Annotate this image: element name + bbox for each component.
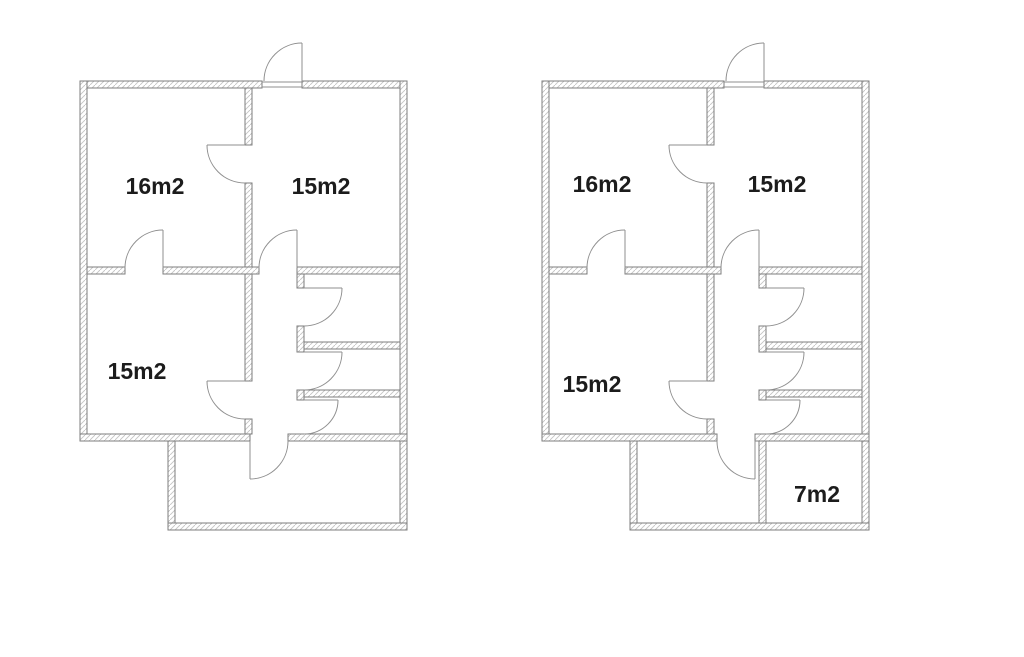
door-threshold (724, 82, 764, 87)
door-corridor-top (766, 288, 804, 326)
room-label-15m2-middle: 15m2 (563, 371, 622, 397)
wall-segment (766, 342, 862, 349)
door-swing-arc (669, 381, 707, 419)
wall-segment (759, 441, 766, 523)
wall-segment (759, 274, 766, 288)
door-swing-arc (766, 288, 804, 326)
door-swing-arc (207, 381, 245, 419)
doors-group (587, 43, 804, 479)
wall-segment (630, 441, 637, 530)
wall-segment (625, 267, 721, 274)
door-room-15m2-middle (669, 381, 707, 419)
wall-segment (304, 390, 400, 397)
floor-plan-left: 16m2 15m2 15m2 (80, 43, 407, 530)
room-label-16m2: 16m2 (573, 171, 632, 197)
wall-segment (87, 267, 125, 274)
door-swing-arc (264, 43, 302, 81)
door-corridor-bottom (766, 400, 800, 434)
wall-segment (764, 81, 869, 88)
door-swing-arc (721, 230, 759, 268)
door-swing-arc (717, 441, 755, 479)
room-label-7m2: 7m2 (794, 481, 840, 507)
wall-segment (80, 81, 262, 88)
wall-segment (304, 342, 400, 349)
wall-segment (759, 267, 862, 274)
door-swing-arc (259, 230, 297, 268)
wall-segment (245, 419, 252, 434)
wall-segment (755, 434, 869, 441)
wall-segment (168, 441, 175, 530)
floor-plan-right: 16m2 15m2 15m2 7m2 (542, 43, 869, 530)
room-label-15m2-top: 15m2 (748, 171, 807, 197)
door-corridor-top (304, 288, 342, 326)
walls-group (542, 81, 869, 530)
door-swing-arc (304, 288, 342, 326)
wall-segment (766, 390, 862, 397)
wall-segment (707, 274, 714, 381)
floor-plans-canvas: 16m2 15m2 15m2 (0, 0, 1024, 657)
labels-group: 16m2 15m2 15m2 7m2 (563, 171, 840, 507)
door-room-15m2-middle (207, 381, 245, 419)
door-swing-arc (304, 352, 342, 390)
wall-segment (302, 81, 407, 88)
wall-segment (707, 183, 714, 267)
wall-segment (630, 523, 869, 530)
door-corridor-middle (304, 352, 342, 390)
wall-segment (168, 523, 407, 530)
wall-segment (297, 274, 304, 288)
wall-segment (542, 434, 717, 441)
door-swing-arc (250, 441, 288, 479)
door-room-15m2-top (721, 230, 759, 268)
floor-plans-page: 16m2 15m2 15m2 (0, 0, 1024, 657)
door-room-16m2 (125, 230, 163, 268)
door-room-15m2-top (259, 230, 297, 268)
walls-group (80, 81, 407, 530)
room-label-15m2-middle: 15m2 (108, 358, 167, 384)
wall-segment (297, 267, 400, 274)
wall-segment (707, 419, 714, 434)
door-swing-arc (207, 145, 245, 183)
wall-segment (297, 390, 304, 400)
door-corridor-middle (766, 352, 804, 390)
wall-segment (400, 81, 407, 530)
wall-segment (245, 274, 252, 381)
room-label-15m2-top: 15m2 (292, 173, 351, 199)
wall-segment (297, 326, 304, 352)
wall-segment (759, 390, 766, 400)
wall-segment (288, 434, 407, 441)
wall-segment (542, 81, 724, 88)
door-between-top-rooms (669, 145, 707, 183)
wall-segment (80, 434, 250, 441)
wall-segment (542, 81, 549, 441)
wall-segment (245, 183, 252, 267)
door-entry (724, 43, 764, 87)
wall-segment (163, 267, 259, 274)
door-extension (717, 441, 755, 479)
door-corridor-bottom (304, 400, 338, 434)
door-entry (262, 43, 302, 87)
door-extension (250, 441, 288, 479)
door-swing-arc (766, 400, 800, 434)
wall-segment (80, 81, 87, 441)
door-threshold (262, 82, 302, 87)
door-swing-arc (125, 230, 163, 268)
door-room-16m2 (587, 230, 625, 268)
doors-group (125, 43, 342, 479)
door-swing-arc (304, 400, 338, 434)
door-between-top-rooms (207, 145, 245, 183)
door-swing-arc (766, 352, 804, 390)
wall-segment (549, 267, 587, 274)
door-swing-arc (726, 43, 764, 81)
wall-segment (759, 326, 766, 352)
wall-segment (862, 81, 869, 530)
room-label-16m2: 16m2 (126, 173, 185, 199)
wall-segment (707, 88, 714, 145)
door-swing-arc (669, 145, 707, 183)
door-swing-arc (587, 230, 625, 268)
wall-segment (245, 88, 252, 145)
